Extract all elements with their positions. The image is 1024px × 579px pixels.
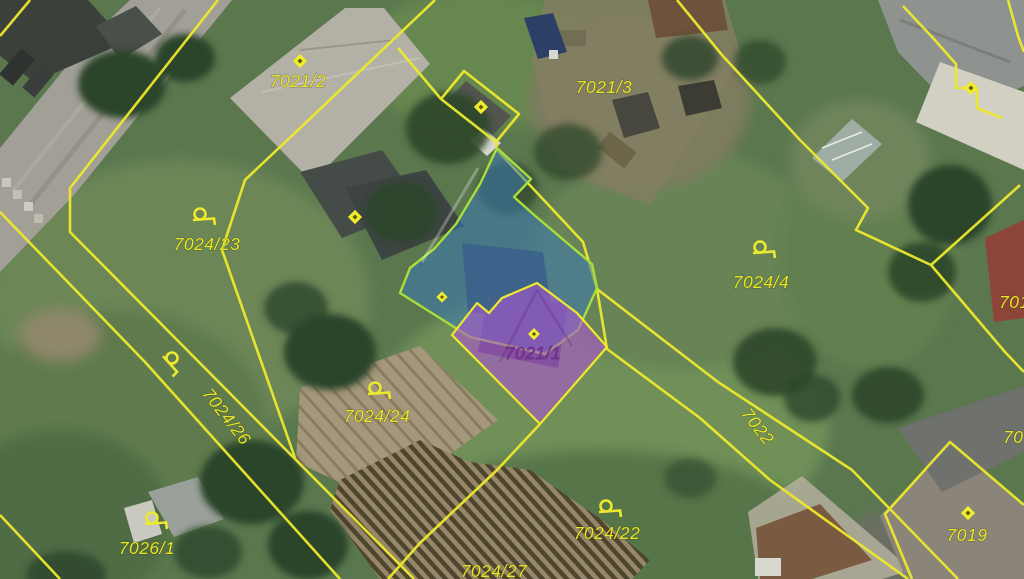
cadastral-map-canvas[interactable]: 7021/2 7021/3 7024/23 7024/4 7021/1 7024…	[0, 0, 1024, 579]
parcel-label-7026-1: 7026/1	[119, 538, 176, 558]
parcel-label-701-clipped: 701	[999, 292, 1024, 312]
parcel-label-7024-27: 7024/27	[461, 561, 529, 579]
parcel-label-7021-2: 7021/2	[270, 71, 327, 91]
parcel-label-7024-24: 7024/24	[344, 406, 411, 426]
parcel-label-7024-23: 7024/23	[174, 234, 241, 254]
map-viewport[interactable]: 7021/2 7021/3 7024/23 7024/4 7021/1 7024…	[0, 0, 1024, 579]
parcel-label-7024-4: 7024/4	[733, 272, 790, 292]
parcel-label-7021-3: 7021/3	[576, 77, 633, 97]
parcel-label-7021-1: 7021/1	[505, 343, 562, 363]
parcel-label-70-clipped: 70	[1003, 427, 1023, 447]
parcel-label-7024-22: 7024/22	[574, 523, 641, 543]
parcel-label-7019: 7019	[947, 525, 988, 545]
